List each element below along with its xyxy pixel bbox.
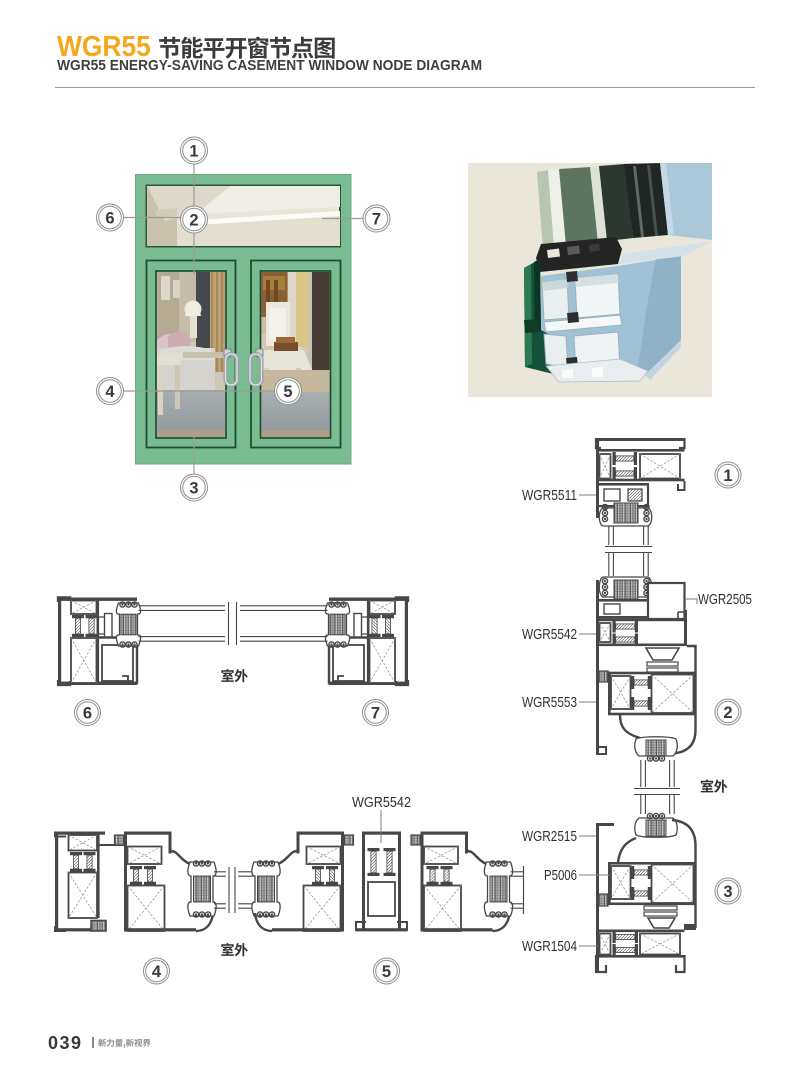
svg-text:WGR5542: WGR5542 [352,795,411,811]
svg-text:6: 6 [105,209,114,227]
svg-text:3: 3 [723,883,732,901]
svg-text:4: 4 [105,383,115,401]
svg-text:WGR5553: WGR5553 [522,695,577,711]
svg-text:7: 7 [371,704,380,722]
svg-text:7: 7 [372,210,381,228]
svg-text:WGR1504: WGR1504 [522,939,577,955]
svg-text:WGR2505: WGR2505 [698,592,752,608]
svg-text:2: 2 [189,211,198,229]
svg-text:2: 2 [723,704,732,722]
svg-text:WGR2515: WGR2515 [522,829,577,845]
svg-text:WGR5511: WGR5511 [522,488,577,504]
svg-text:4: 4 [152,963,162,981]
svg-text:1: 1 [723,467,732,485]
svg-text:P5006: P5006 [544,868,577,884]
svg-text:1: 1 [189,142,198,160]
svg-text:5: 5 [382,963,391,981]
svg-text:5: 5 [283,383,292,401]
svg-text:6: 6 [83,704,92,722]
svg-text:3: 3 [189,479,198,497]
svg-text:WGR5542: WGR5542 [522,627,577,643]
